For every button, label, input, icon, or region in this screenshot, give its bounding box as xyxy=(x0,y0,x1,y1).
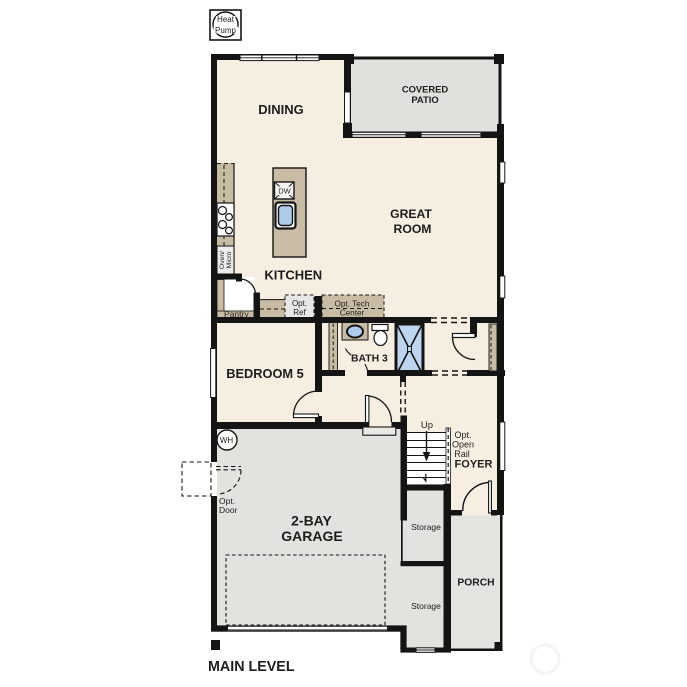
svg-text:DINING: DINING xyxy=(258,102,304,117)
svg-text:Ref: Ref xyxy=(293,308,306,317)
svg-text:2-BAY: 2-BAY xyxy=(291,513,332,529)
svg-text:GREAT: GREAT xyxy=(390,207,432,221)
svg-text:ROOM: ROOM xyxy=(394,222,432,236)
svg-text:Micro: Micro xyxy=(226,251,233,268)
svg-text:MAIN LEVEL: MAIN LEVEL xyxy=(208,659,295,675)
svg-text:Heat: Heat xyxy=(217,15,235,24)
svg-text:GARAGE: GARAGE xyxy=(281,528,342,544)
svg-text:Pantry: Pantry xyxy=(224,309,249,319)
svg-text:Oven/: Oven/ xyxy=(219,251,226,269)
svg-text:Center: Center xyxy=(340,309,365,318)
svg-text:Storage: Storage xyxy=(411,522,441,532)
svg-text:PORCH: PORCH xyxy=(457,578,494,589)
svg-text:Opt.: Opt. xyxy=(454,430,471,440)
svg-text:Opt. Tech: Opt. Tech xyxy=(335,300,370,309)
svg-text:Opt.: Opt. xyxy=(292,299,307,308)
svg-text:Open: Open xyxy=(452,440,474,450)
svg-text:DW: DW xyxy=(278,187,291,196)
svg-text:BEDROOM 5: BEDROOM 5 xyxy=(226,366,304,381)
svg-text:Pump: Pump xyxy=(215,26,236,35)
svg-text:Door: Door xyxy=(219,505,238,515)
svg-text:PATIO: PATIO xyxy=(411,94,438,105)
svg-text:FOYER: FOYER xyxy=(455,458,493,470)
svg-text:KITCHEN: KITCHEN xyxy=(264,267,322,282)
svg-text:COVERED: COVERED xyxy=(402,83,449,94)
svg-text:WH: WH xyxy=(220,436,234,445)
svg-text:Up: Up xyxy=(421,420,433,431)
svg-text:BATH 3: BATH 3 xyxy=(351,354,388,365)
svg-text:Storage: Storage xyxy=(411,601,441,611)
